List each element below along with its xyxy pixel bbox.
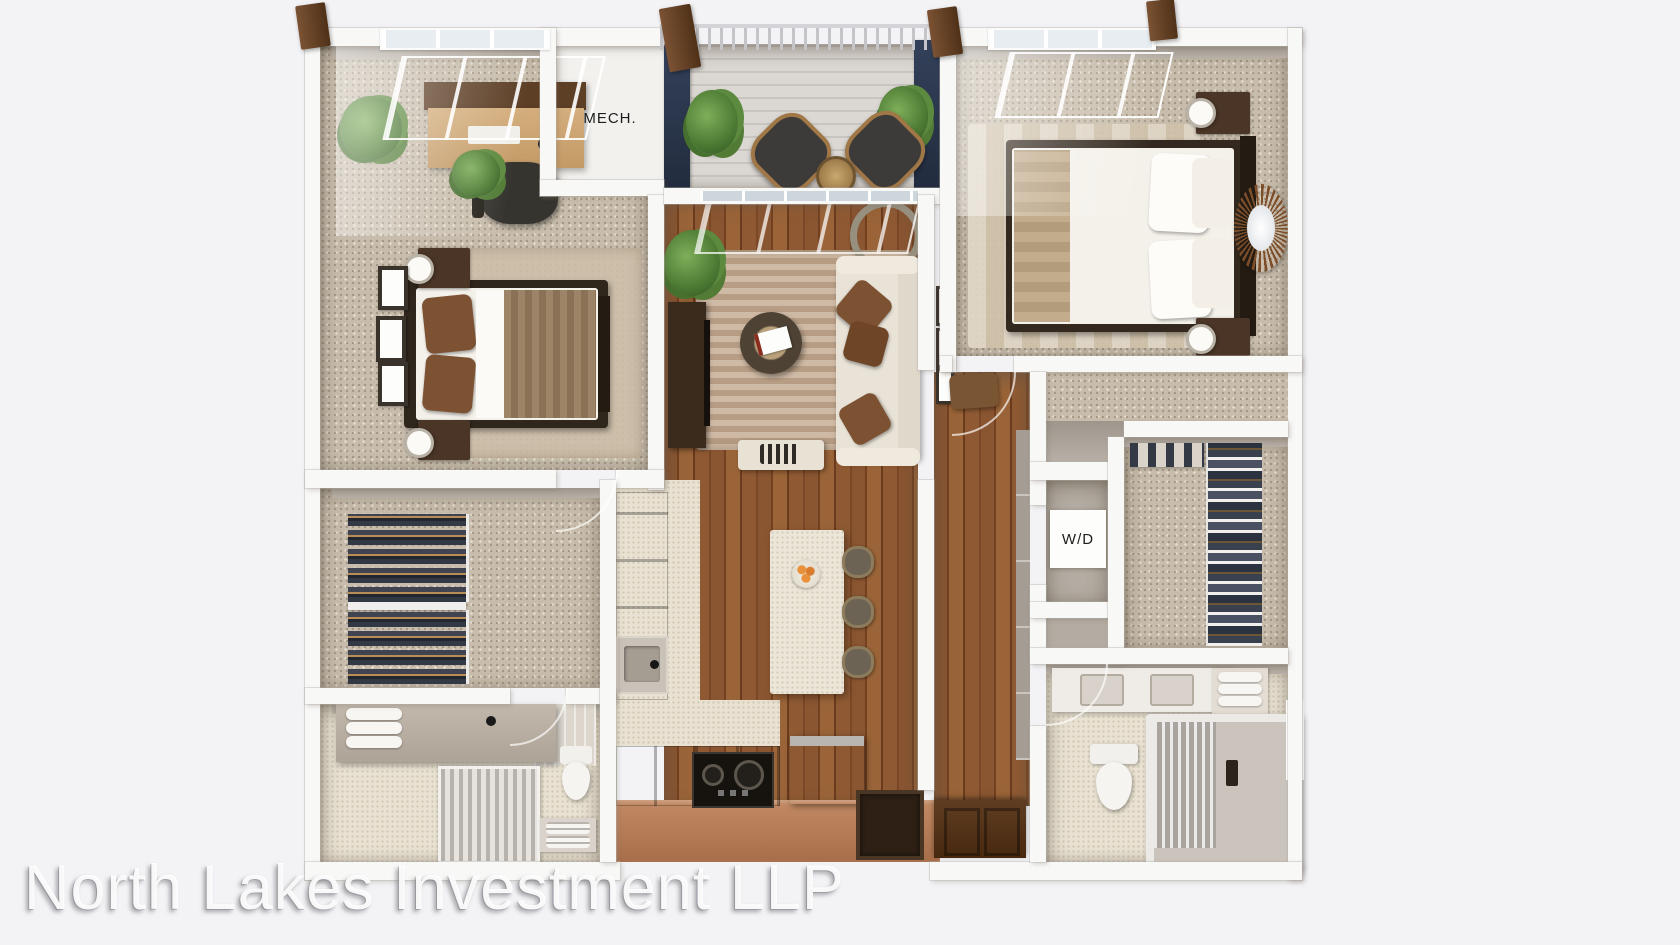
wall-right-exterior xyxy=(1288,28,1302,880)
washer-dryer-unit: W/D xyxy=(1050,510,1106,568)
wall-hall-east-c xyxy=(1030,726,1046,862)
wall-closet2-left xyxy=(1108,437,1124,664)
roof-post-4 xyxy=(1146,0,1178,41)
refrigerator xyxy=(790,736,864,804)
bath2-sink-right xyxy=(1150,674,1194,706)
kitchen-door-mat xyxy=(856,790,924,860)
kitchen-island xyxy=(770,530,844,694)
wall-bedroom2-south-a xyxy=(940,356,952,372)
tv-screen xyxy=(704,320,710,426)
wall-bedroom1-living xyxy=(648,195,664,490)
bed-1-pillow-top xyxy=(421,294,477,355)
bath1-towel-2 xyxy=(346,722,402,734)
bath1-towel-3 xyxy=(346,736,402,748)
wall-hall-east-a xyxy=(1030,372,1046,505)
bed-2-runner xyxy=(1014,150,1070,322)
roof-post-3 xyxy=(927,6,963,58)
closet-left-shelf xyxy=(348,602,466,610)
wall-bedroom2-west xyxy=(940,28,956,372)
wall-left-exterior xyxy=(305,28,320,880)
lamp-1-bottom xyxy=(404,428,434,458)
wall-art-1a xyxy=(378,266,408,310)
bed-1-duvet xyxy=(504,290,596,418)
bath2-towel-2 xyxy=(1218,684,1262,694)
closet-left-clothes-upper xyxy=(348,514,469,602)
floor-plan-stage: W/D xyxy=(0,0,1680,945)
burner-small xyxy=(702,764,724,786)
island-stool-3 xyxy=(842,646,874,678)
wall-art-1b xyxy=(376,316,406,362)
fruit-bowl xyxy=(792,560,820,588)
roof-post-1 xyxy=(295,2,331,50)
bath2-towel-1 xyxy=(1218,672,1262,682)
balcony-sliding-glass xyxy=(700,191,918,201)
closet-right-top-shelf xyxy=(1130,443,1204,467)
bedroom2-window xyxy=(988,28,1156,50)
mirror-glass xyxy=(1247,205,1275,251)
bed-1-bench xyxy=(598,296,610,412)
bathtub-glass xyxy=(1154,722,1216,848)
wall-closet2-top xyxy=(1124,421,1288,437)
balcony-plant-left xyxy=(686,90,738,154)
closet-left-clothes-lower xyxy=(348,610,469,684)
bedroom1-window-reflection xyxy=(382,56,605,140)
cooktop-knobs xyxy=(718,790,748,796)
laundry-hall-floor xyxy=(1046,618,1108,648)
kitchen-faucet xyxy=(650,660,659,669)
wall-mech-bottom xyxy=(540,180,664,196)
hall-carpet-right xyxy=(1046,372,1288,421)
bed-1-sheet-fold xyxy=(476,290,504,418)
wall-mech-left xyxy=(540,28,556,196)
ottoman-striped-pillow xyxy=(760,444,800,464)
bath1-towel-1 xyxy=(346,708,402,720)
tub-fixture xyxy=(1226,760,1238,786)
lamp-1-top xyxy=(404,254,434,284)
bed-2-pillow-c xyxy=(1192,158,1232,228)
wall-living-hall-a xyxy=(918,195,934,370)
bed-2-pillow-d xyxy=(1192,238,1232,308)
kitchen-tile-corner xyxy=(616,700,780,746)
wall-hall-east-b xyxy=(1030,585,1046,656)
wall-living-hall-b xyxy=(918,480,934,790)
refrigerator-top xyxy=(790,736,864,746)
bed-1-pillow-bottom xyxy=(422,354,477,414)
bath1-bench-towel-1 xyxy=(546,822,590,834)
burner-large xyxy=(734,760,764,790)
living-door-reflection xyxy=(694,202,920,254)
wall-bedroom1-south-b xyxy=(616,470,664,488)
island-stool-1 xyxy=(842,546,874,578)
plant-bedroom1-desk xyxy=(452,150,500,196)
washer-dryer-label: W/D xyxy=(1062,531,1094,548)
bedroom2-window-reflection xyxy=(994,52,1173,118)
bath2-towel-3 xyxy=(1218,696,1262,706)
lamp-2-bottom xyxy=(1186,324,1216,354)
island-stool-2 xyxy=(842,596,874,628)
sofa-arm-top xyxy=(836,256,920,274)
bath1-bench-towel-2 xyxy=(546,836,590,848)
sofa-back xyxy=(898,264,920,460)
wall-bath1-north-a xyxy=(305,688,510,704)
media-console xyxy=(668,302,706,448)
entry-door-panel-left xyxy=(944,808,980,856)
cooktop xyxy=(692,752,774,808)
shower xyxy=(438,766,540,864)
entry-door xyxy=(934,800,1026,858)
wall-bedroom1-south-a xyxy=(305,470,556,488)
wall-kitchen-west xyxy=(600,480,616,862)
hall-closet-panels xyxy=(1016,430,1030,760)
watermark: North Lakes Investment LLP xyxy=(24,852,845,924)
bath1-faucet xyxy=(486,716,496,726)
wall-art-1c xyxy=(378,362,408,406)
bedroom1-window xyxy=(380,28,550,50)
wall-bedroom2-south-b xyxy=(1014,356,1302,372)
mech-room-label: MECH. xyxy=(556,110,664,127)
balcony-railing xyxy=(660,24,944,50)
closet-right-shelves xyxy=(1206,443,1262,646)
toilet2-tank xyxy=(1090,744,1138,764)
lamp-2-top xyxy=(1186,98,1216,128)
wall-bath2-north xyxy=(1030,648,1288,664)
entry-door-panel-right xyxy=(984,808,1020,856)
sofa-arm-bottom xyxy=(836,448,920,466)
wall-bottom-right xyxy=(930,862,1302,880)
